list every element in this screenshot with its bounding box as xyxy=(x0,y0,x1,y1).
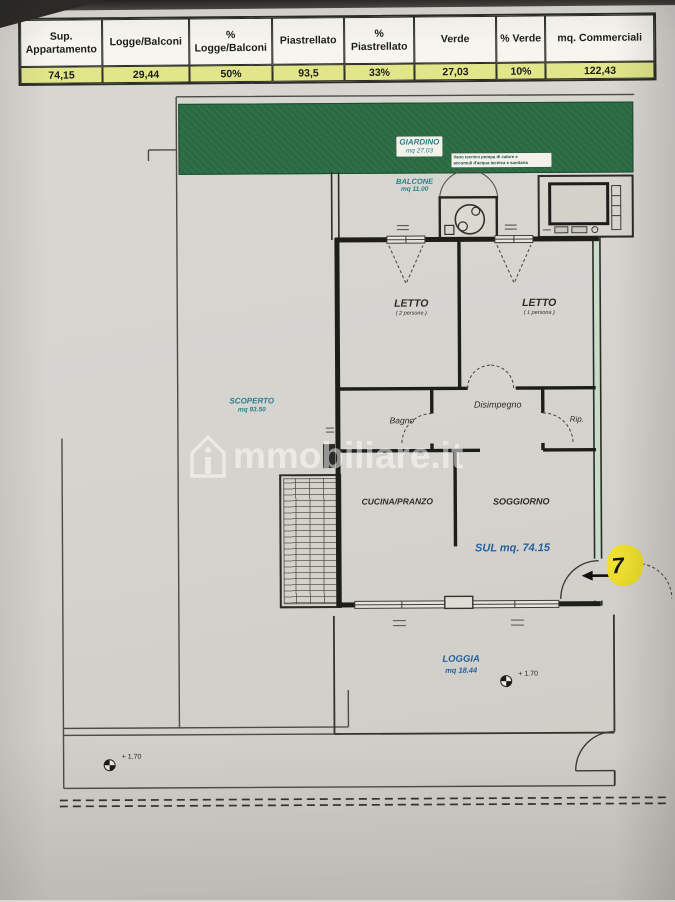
unit-number-marker: 7 xyxy=(605,543,645,587)
entrance-doors xyxy=(561,561,615,771)
storage-label: Rip. xyxy=(570,415,584,425)
level-benchmark-icon xyxy=(104,760,115,771)
bedroom-double-label: LETTO ( 2 persone ) xyxy=(394,298,428,318)
apartment-walls xyxy=(335,237,602,607)
tech-note-label: Vano tecnico pompa di calore e accumuli … xyxy=(451,153,551,167)
garden-label: GIARDINO mq 27.03 xyxy=(396,136,442,156)
floorplan-photo: Sup. Appartamento Logge/Balconi % Logge/… xyxy=(0,0,675,900)
kitchen-label: CUCINA/PRANZO xyxy=(362,496,433,507)
level-benchmark-icon xyxy=(501,676,512,687)
dimension-ticks xyxy=(325,225,553,626)
usable-surface-label: SUL mq. 74.15 xyxy=(475,542,550,556)
terrace-label: SCOPERTO mq 93.50 xyxy=(229,396,274,414)
balcony-label: BALCONE mq 11.00 xyxy=(396,177,433,195)
level-quota-loggia: + 1.70 xyxy=(518,671,538,680)
loggia-walls xyxy=(334,615,615,787)
bathroom-label: Bagno xyxy=(390,415,415,426)
floorplan: GIARDINO mq 27.03 Vano tecnico pompa di … xyxy=(0,0,675,902)
lot-boundary xyxy=(60,94,638,788)
hallway-label: Disimpegno xyxy=(474,399,522,410)
pergola-grid xyxy=(279,474,342,608)
bedroom-single-label: LETTO ( 1 persona ) xyxy=(522,297,556,317)
unit-number: 7 xyxy=(611,552,625,579)
fence-line xyxy=(60,797,667,806)
loggia-label: LOGGIA mq 18.44 xyxy=(442,654,480,675)
living-room-label: SOGGIORNO xyxy=(493,496,550,508)
level-quota-terrace: + 1.70 xyxy=(122,754,142,763)
pilaster xyxy=(323,444,335,468)
heat-pump-closet xyxy=(440,170,498,239)
technical-room xyxy=(539,175,633,236)
